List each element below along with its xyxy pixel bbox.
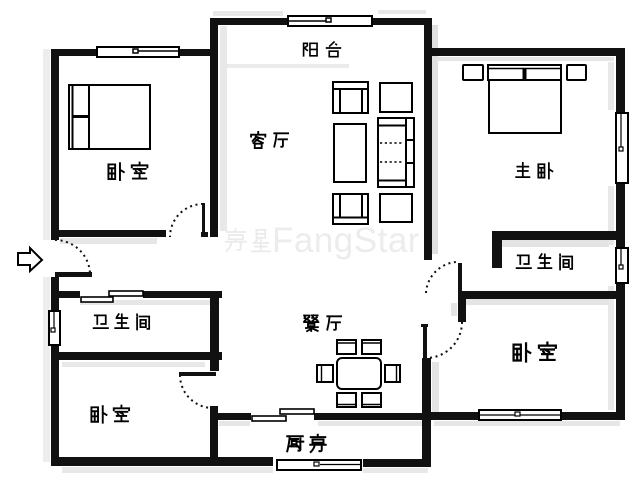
svg-text:FangStar: FangStar — [272, 221, 420, 260]
